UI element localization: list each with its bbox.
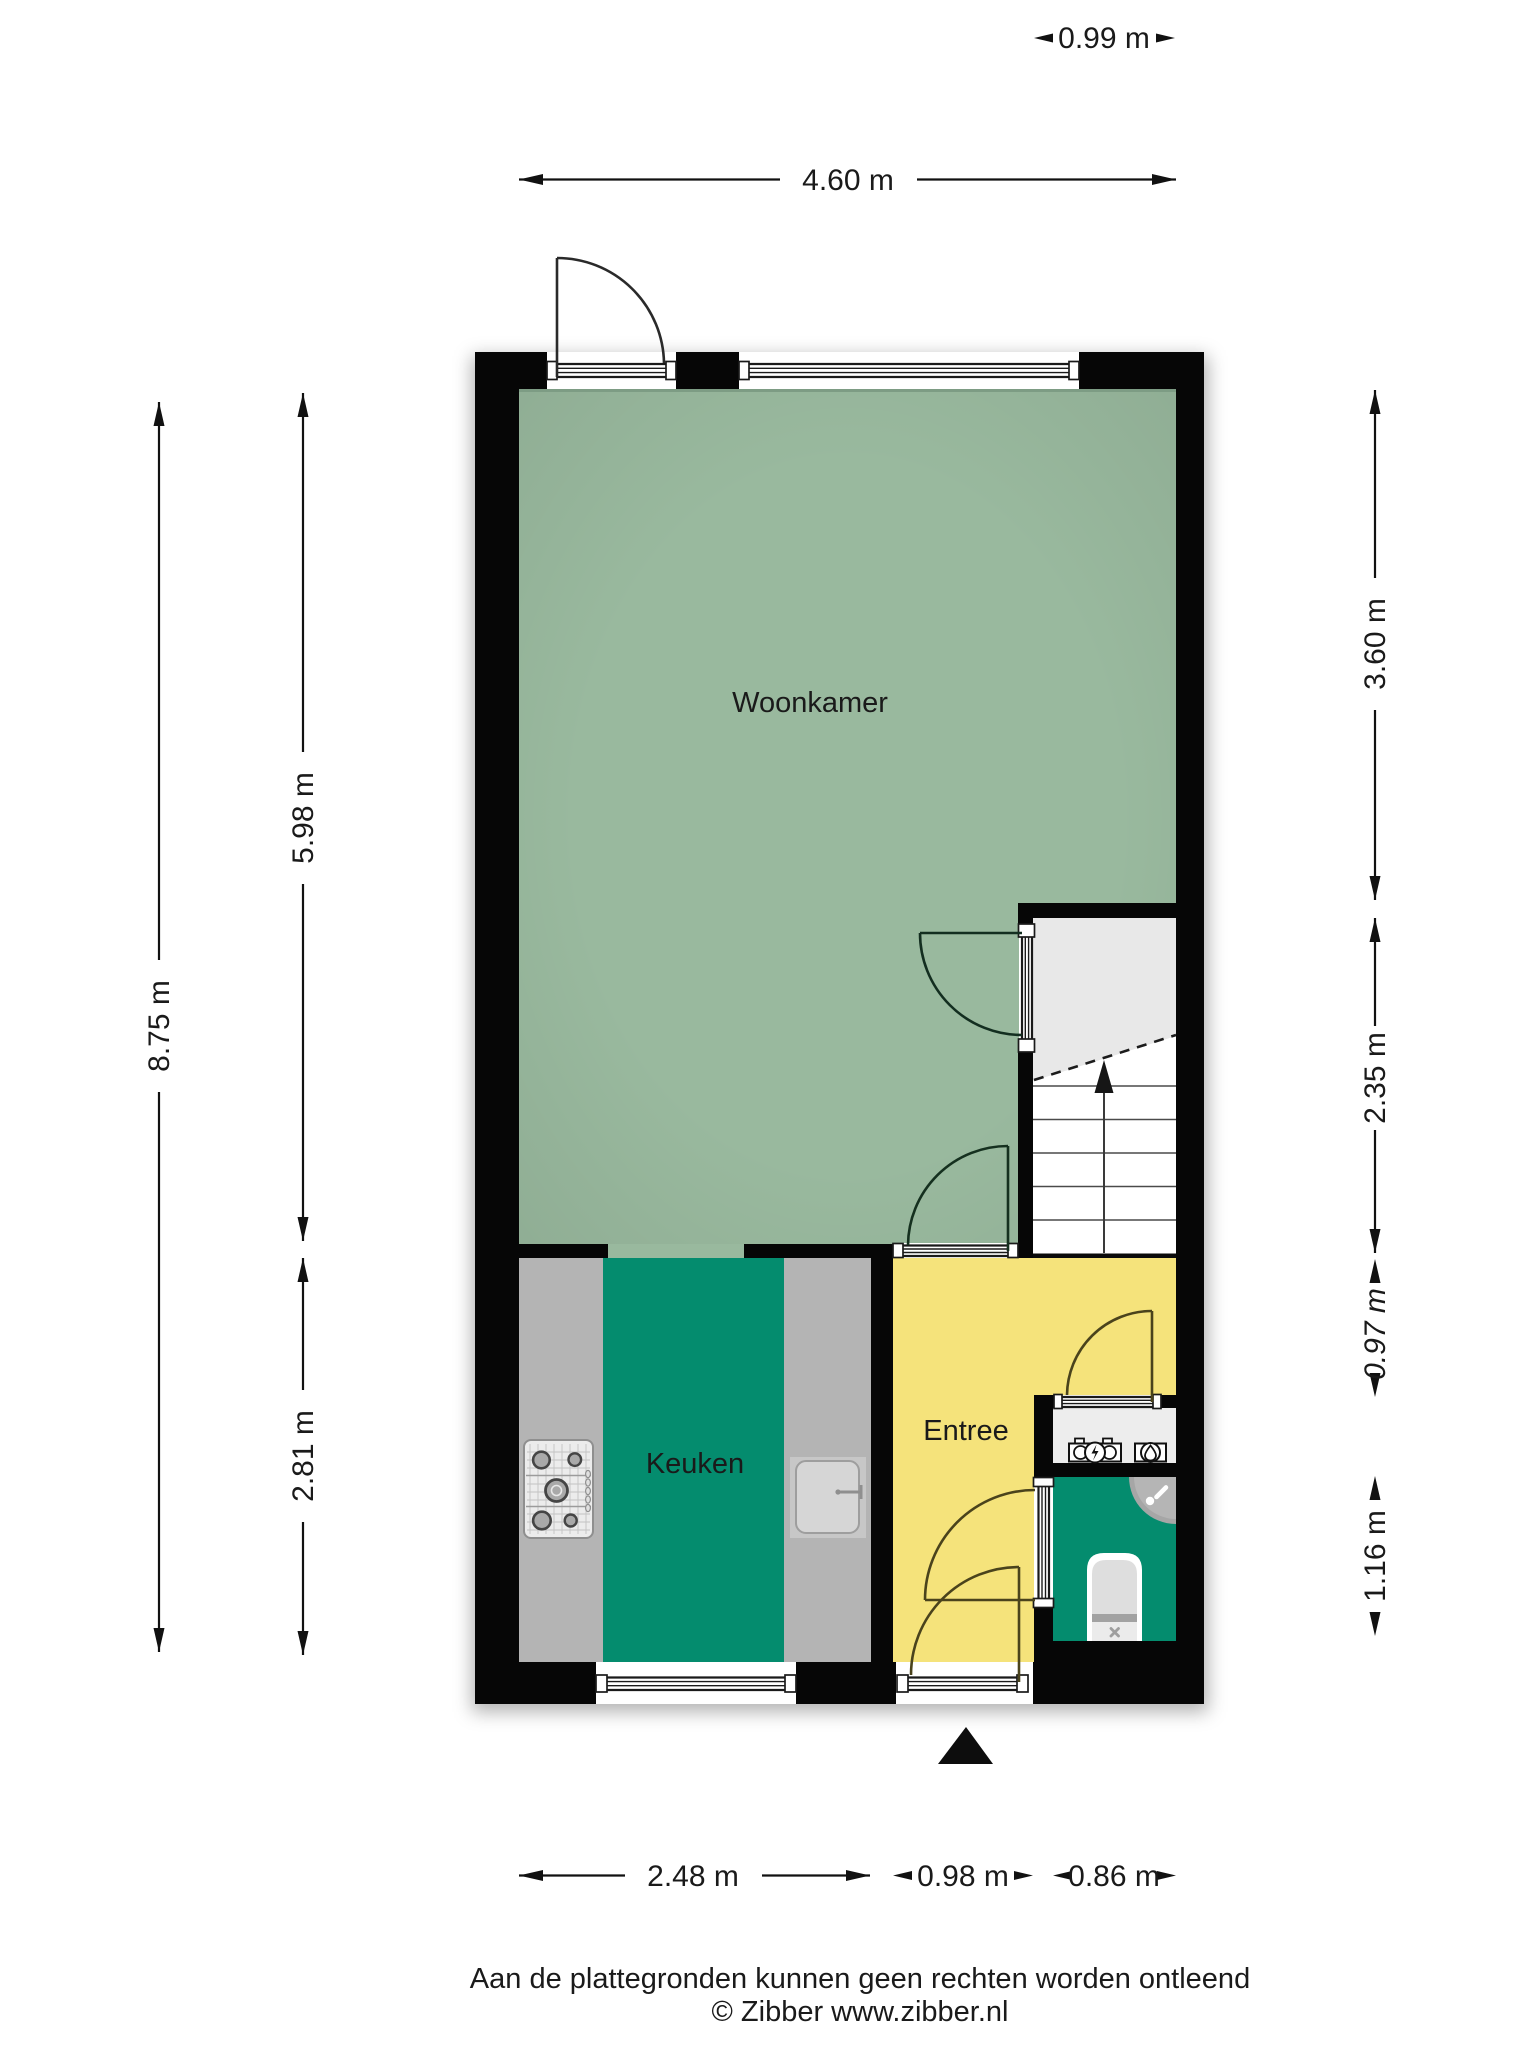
- svg-text:5.98 m: 5.98 m: [287, 772, 320, 864]
- svg-text:1.16 m: 1.16 m: [1359, 1510, 1392, 1602]
- svg-text:0.97 m: 0.97 m: [1359, 1288, 1392, 1380]
- svg-text:0.86 m: 0.86 m: [1068, 1860, 1160, 1893]
- svg-text:Woonkamer: Woonkamer: [732, 687, 888, 719]
- svg-text:8.75 m: 8.75 m: [143, 980, 176, 1072]
- svg-text:3.60 m: 3.60 m: [1359, 598, 1392, 690]
- svg-text:Keuken: Keuken: [646, 1448, 744, 1480]
- svg-text:2.81 m: 2.81 m: [287, 1410, 320, 1502]
- svg-text:0.99 m: 0.99 m: [1058, 22, 1150, 55]
- svg-text:0.98 m: 0.98 m: [917, 1860, 1009, 1893]
- svg-text:Entree: Entree: [923, 1415, 1008, 1447]
- svg-text:© Zibber www.zibber.nl: © Zibber www.zibber.nl: [712, 1996, 1009, 2028]
- svg-text:4.60 m: 4.60 m: [802, 164, 894, 197]
- svg-text:2.48 m: 2.48 m: [647, 1860, 739, 1893]
- svg-text:2.35 m: 2.35 m: [1359, 1032, 1392, 1124]
- svg-text:Aan de plattegronden kunnen ge: Aan de plattegronden kunnen geen rechten…: [470, 1963, 1250, 1995]
